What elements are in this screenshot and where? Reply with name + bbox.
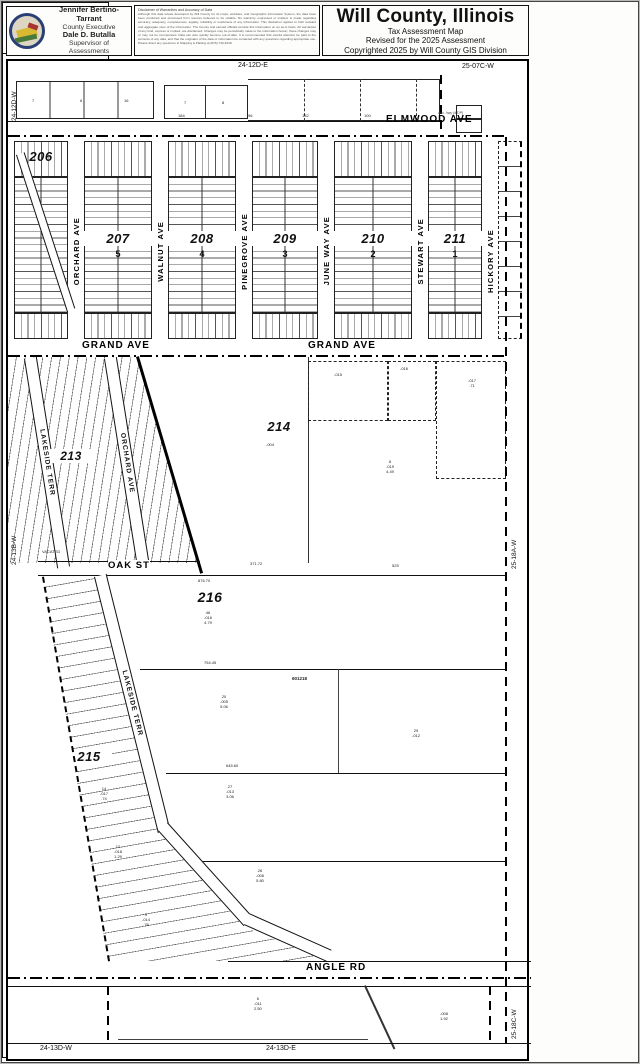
map-annotation: 46-0164.79: [204, 611, 212, 625]
map-annotation: 754.45: [204, 661, 216, 666]
street-label-grand-w: GRAND AVE: [82, 340, 150, 351]
block-215-parcels: [38, 577, 338, 965]
map-title: Will County, Illinois: [323, 7, 528, 27]
lot-row: [428, 141, 482, 177]
block-number-206: 206: [14, 149, 68, 164]
map-annotation: 645.60: [226, 764, 238, 769]
map-annotation: 601218: [292, 676, 307, 681]
map-annotation: 29-012: [412, 729, 420, 739]
block-number-211: 211: [428, 231, 482, 246]
parcel-line: [166, 773, 506, 774]
parcel-line: [338, 669, 339, 773]
street-label-grand-e: GRAND AVE: [308, 340, 376, 351]
lot-row: [252, 313, 318, 339]
road-centerline: [8, 977, 531, 979]
map-annotation: 27-0133.06: [226, 785, 234, 799]
lot-row: [14, 313, 68, 339]
block-number-210: 210: [334, 231, 412, 246]
map-boundary-dashed: [489, 986, 491, 1043]
parcel-dashed: [388, 361, 436, 421]
disclaimer-body: Although this data is/was developed by W…: [138, 12, 316, 45]
street-label-angle: ANGLE RD: [306, 962, 366, 973]
map-boundary-dashed-east: [505, 137, 507, 1043]
map-annotation: 100: [364, 114, 371, 119]
lot-row: [334, 141, 412, 177]
block-number-209: 209: [252, 231, 318, 246]
map-annotation: 7: [32, 99, 34, 104]
map-annotation: 6: [80, 99, 82, 104]
map-annotation: 371.72: [250, 562, 262, 567]
tax-assessment-map-sheet: Jennifer Bertino-Tarrant County Executiv…: [0, 0, 640, 1064]
lot-row: [334, 313, 412, 339]
map-annotation: 12-0181.29: [114, 845, 122, 859]
lot-row: [252, 141, 318, 177]
street-label-june-way: JUNE WAY AVE: [318, 181, 334, 321]
block-sub-211: 1: [428, 249, 482, 259]
map-annotation: 525: [392, 564, 399, 569]
disclaimer-box: Disclaimer of Warranties and Accuracy of…: [134, 5, 320, 56]
street-label-pinegrove: PINEGROVE AVE: [236, 181, 252, 321]
map-annotation: 96: [248, 114, 252, 119]
block-sub-207: 5: [84, 249, 152, 259]
map-annotation: 26-0065.80: [256, 869, 264, 883]
map-annotation: -015: [334, 373, 342, 378]
street-label-walnut: WALNUT AVE: [152, 181, 168, 321]
street-label-elmwood: ELMWOOD AVE: [386, 114, 473, 125]
map-annotation: 184: [178, 114, 185, 119]
adjacent-map-label: 24-12D-E: [238, 62, 268, 69]
map-annotation: 6-0112.50: [254, 997, 262, 1011]
block-number-208: 208: [168, 231, 236, 246]
assessor-header-box: Jennifer Bertino-Tarrant County Executiv…: [6, 6, 132, 56]
block-number-207: 207: [84, 231, 152, 246]
block-sub-210: 2: [334, 249, 412, 259]
parcel-group: [164, 85, 248, 119]
map-subtitle-1: Tax Assessment Map: [323, 27, 528, 36]
block-number-214: 214: [256, 419, 302, 434]
map-annotation: aux. hwy (#T/P): [438, 111, 463, 115]
block-number-213: 213: [50, 449, 92, 463]
street-edge-line: [8, 121, 440, 122]
map-annotation: 132: [302, 114, 309, 119]
adjacent-map-label: 25-07C-W: [462, 63, 494, 70]
map-annotation: 8-0194.49: [386, 460, 394, 474]
adjacent-map-label: 25-18C-W: [511, 987, 518, 1039]
lot-row: [168, 141, 236, 177]
map-annotation: 20-0055.06: [220, 695, 228, 709]
map-annotation: 14-017.74: [100, 787, 108, 801]
map-annotation: -017.71: [468, 379, 476, 389]
boundary-dashdot-line: [8, 135, 506, 137]
parcel-dashed: [308, 361, 388, 421]
block-number-216: 216: [188, 589, 232, 605]
block-sub-209: 3: [252, 249, 318, 259]
map-subtitle-3: Copyrighted 2025 by Will County GIS Divi…: [323, 46, 528, 55]
map-annotation: 16: [124, 99, 128, 104]
map-boundary-dashed: [107, 986, 109, 1043]
lot-row: [428, 313, 482, 339]
east-parcel-column: [498, 141, 522, 339]
adjacent-map-label: 24-13D-E: [266, 1045, 296, 1052]
street-label-stewart: STEWART AVE: [412, 181, 428, 321]
parcel-line: [360, 79, 361, 121]
street-label-oak: OAK ST: [108, 560, 150, 571]
sheet-border: Jennifer Bertino-Tarrant County Executiv…: [1, 1, 639, 1063]
street-label-orchard-n: ORCHARD AVE: [68, 181, 84, 321]
map-annotation: 9-014.78: [142, 913, 150, 927]
supervisor-name: Dale D. Butalla: [49, 31, 129, 40]
block-sub-208: 4: [168, 249, 236, 259]
boundary-dashdot-line: [8, 355, 506, 357]
map-annotation: 7: [184, 101, 186, 106]
map-annotation: 876.70: [198, 579, 210, 584]
will-county-seal-icon: [9, 13, 45, 49]
supervisor-title: Supervisor of Assessments: [49, 40, 129, 56]
street-edge-line: [38, 575, 506, 576]
lot-row: [84, 141, 152, 177]
title-block: Will County, Illinois Tax Assessment Map…: [322, 5, 529, 56]
lot-row: [84, 313, 152, 339]
street-edge-line: [228, 961, 531, 962]
adjacent-map-label: 24-13D-W: [40, 1045, 72, 1052]
map-boundary-dashed: [440, 75, 442, 137]
map-annotation: VACATED: [42, 550, 60, 555]
lot-row: [168, 313, 236, 339]
parcel-line: [118, 1039, 368, 1040]
county-executive-name: Jennifer Bertino-Tarrant: [49, 6, 129, 23]
parcel-group: [16, 81, 154, 119]
parcel-line: [198, 861, 506, 862]
street-edge-line: [8, 986, 531, 987]
map-annotation: -0081.92: [440, 1012, 448, 1022]
street-label-hickory: HICKORY AVE: [482, 191, 498, 331]
margin-line: [8, 1043, 531, 1044]
map-annotation: 8: [222, 101, 224, 106]
parcel-line-diagonal: [364, 985, 395, 1049]
map-frame: 24-12D-E 25-07C-W 24-12D-W 24-13B-W 25-1…: [6, 59, 529, 1061]
map-subtitle-2: Revised for the 2025 Assessment: [323, 36, 528, 45]
parcel-line: [140, 669, 506, 670]
adjacent-map-label: 25-18A-W: [511, 505, 518, 569]
map-annotation: -004: [266, 443, 274, 448]
map-annotation: -016: [400, 367, 408, 372]
